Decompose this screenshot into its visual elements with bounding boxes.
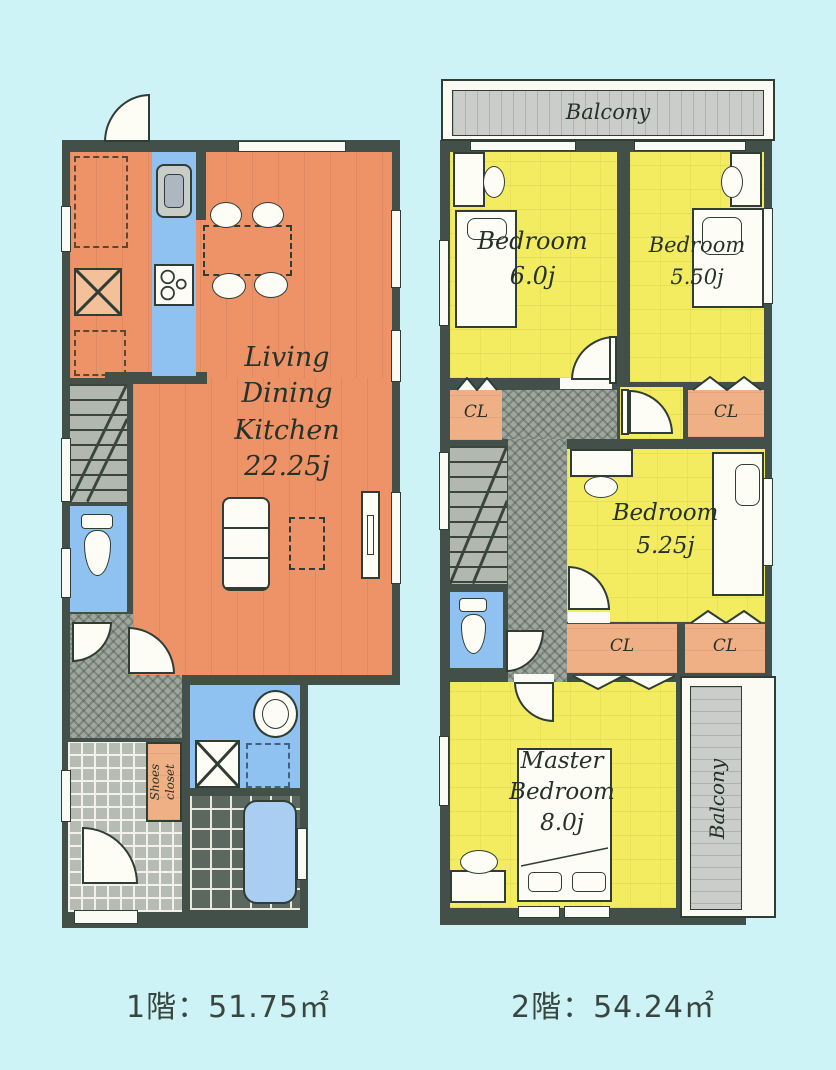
window [763, 478, 773, 566]
closet-door-zigzag [456, 376, 498, 391]
wall-stub-kitchen [196, 152, 206, 220]
window [61, 548, 71, 598]
pillow [572, 872, 606, 892]
dining-chair [254, 272, 288, 298]
window [564, 906, 610, 918]
shoes-closet: Shoes closet [146, 742, 182, 822]
balcony-side: Balcony [690, 686, 742, 910]
window [391, 210, 401, 288]
door-leaf [621, 389, 629, 435]
master-bedroom-label: Master Bedroom 8.0j [462, 746, 662, 839]
staircase [70, 384, 127, 502]
cl2-label: CL [688, 402, 764, 422]
window [439, 452, 449, 530]
pantry-dashed-space [74, 156, 128, 248]
closet-door-zigzag [690, 609, 762, 624]
door-gap [568, 612, 610, 623]
balcony-top-label: Balcony [452, 100, 764, 124]
tv-board [361, 491, 380, 579]
window [61, 770, 71, 822]
dining-chair [210, 202, 242, 228]
master-name2: Bedroom [462, 777, 662, 808]
closet-door-zigzag [692, 375, 762, 391]
desk-chair [721, 166, 743, 198]
washing-machine [195, 740, 240, 788]
bedroom2-name: Bedroom [628, 230, 766, 262]
window [61, 206, 71, 252]
dining-chair [252, 202, 284, 228]
cl4-label: CL [685, 636, 765, 656]
balcony-side-label: Balcony [691, 687, 743, 911]
dining-chair [212, 273, 246, 299]
ldk-line1: Living [197, 340, 377, 376]
window [391, 492, 401, 584]
cl1-label: CL [450, 402, 502, 422]
door-arc-kitchen-back [104, 94, 150, 142]
shoes-closet-line1: Shoes [148, 742, 163, 822]
window [439, 736, 449, 806]
floor2-caption: 2階：54.24㎡ [468, 982, 758, 1026]
sofa [222, 497, 270, 591]
tv [367, 515, 374, 555]
door-leaf [609, 336, 617, 384]
bedroom2-size: 5.50j [628, 262, 766, 294]
bedroom3-label: Bedroom 5.25j [578, 497, 753, 564]
gas-stove [154, 264, 194, 306]
bedroom1-label: Bedroom 6.0j [450, 224, 615, 294]
sink-basin [164, 174, 184, 208]
kitchen-sink [156, 164, 192, 218]
shoes-closet-label: Shoes closet [148, 742, 180, 822]
master-size: 8.0j [462, 808, 662, 839]
window [518, 906, 560, 918]
desk [570, 449, 633, 477]
entrance-door-gap [74, 910, 138, 924]
desk-chair [584, 476, 618, 498]
pillow [528, 872, 562, 892]
bedroom1-name: Bedroom [450, 224, 615, 259]
bedroom3-size: 5.25j [578, 530, 753, 563]
shoes-closet-line2: closet [163, 742, 178, 822]
cl3-label: CL [567, 636, 677, 656]
coffee-table [289, 517, 325, 570]
staircase-2f [450, 446, 507, 584]
ldk-line2: Dining [197, 376, 377, 412]
stool [460, 850, 498, 874]
side-table [450, 870, 506, 903]
bathtub [243, 800, 297, 904]
floor1-caption: 1階：51.75㎡ [88, 982, 368, 1026]
storage-dashed-space [74, 330, 126, 376]
window [238, 141, 346, 152]
hallway-upper [502, 390, 617, 439]
ldk-line3: Kitchen [197, 413, 377, 449]
toilet-tank [81, 514, 113, 529]
dining-table [203, 225, 292, 276]
bedroom2-label: Bedroom 5.50j [628, 230, 766, 293]
bedroom1-size: 6.0j [450, 259, 615, 294]
ldk-size: 22.25j [197, 449, 377, 485]
washer-pan-dashed [246, 743, 290, 788]
closet-door-zigzag [572, 675, 676, 691]
ldk-label: Living Dining Kitchen 22.25j [197, 340, 377, 486]
wash-basin-bowl [262, 699, 289, 729]
desk [453, 152, 485, 207]
master-name1: Master [462, 746, 662, 777]
window [391, 330, 401, 382]
refrigerator-box [74, 268, 122, 316]
bedroom3-name: Bedroom [578, 497, 753, 530]
floorplan-canvas: Shoes closet Living [0, 0, 836, 1070]
window [634, 141, 746, 151]
window [297, 828, 307, 880]
window [439, 240, 449, 326]
window [61, 438, 71, 502]
wash-basin [253, 690, 298, 738]
desk-chair [483, 166, 505, 198]
window [470, 141, 576, 151]
toilet-tank-2f [459, 598, 487, 612]
